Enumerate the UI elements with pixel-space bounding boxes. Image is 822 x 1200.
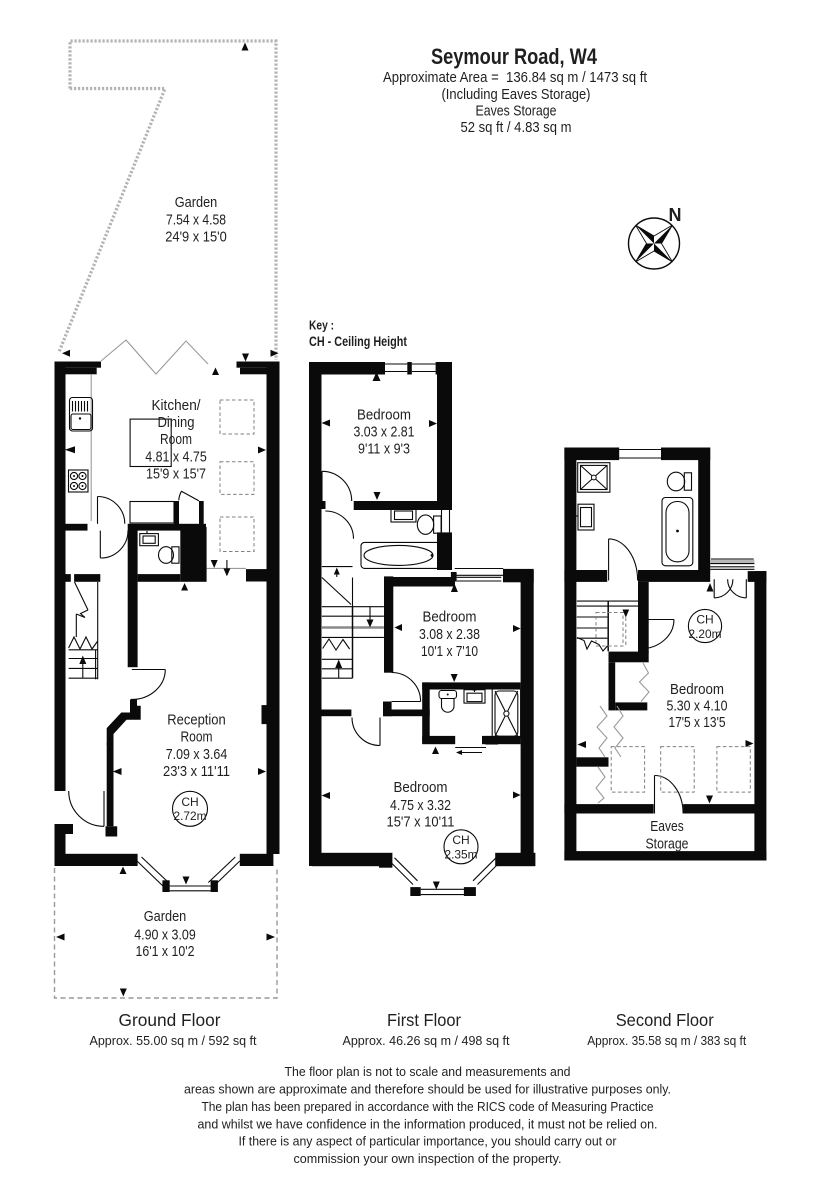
svg-text:16'1 x 10'2: 16'1 x 10'2 — [136, 943, 195, 960]
svg-text:2.35m: 2.35m — [445, 848, 478, 862]
svg-text:The plan has been prepared in: The plan has been prepared in accordance… — [202, 1099, 654, 1114]
svg-text:Garden: Garden — [144, 908, 187, 925]
svg-text:3.03 x 2.81: 3.03 x 2.81 — [354, 424, 415, 441]
svg-text:17'5 x 13'5: 17'5 x 13'5 — [669, 714, 726, 731]
svg-text:Dining: Dining — [158, 414, 195, 431]
svg-text:Bedroom: Bedroom — [670, 681, 724, 698]
svg-text:CH: CH — [452, 833, 469, 847]
svg-text:Eaves: Eaves — [650, 818, 684, 835]
svg-text:Seymour Road, W4: Seymour Road, W4 — [431, 44, 598, 69]
svg-text:Bedroom: Bedroom — [423, 609, 477, 626]
svg-text:23'3 x 11'11: 23'3 x 11'11 — [163, 763, 230, 780]
svg-text:Approx. 46.26 sq m / 498 sq ft: Approx. 46.26 sq m / 498 sq ft — [343, 1033, 510, 1048]
svg-text:15'9 x 15'7: 15'9 x 15'7 — [146, 466, 206, 483]
svg-text:Approx. 35.58 sq m / 383 sq ft: Approx. 35.58 sq m / 383 sq ft — [587, 1033, 746, 1048]
svg-text:(Including Eaves Storage): (Including Eaves Storage) — [442, 87, 591, 103]
svg-text:Approx. 55.00 sq m / 592 sq ft: Approx. 55.00 sq m / 592 sq ft — [90, 1033, 257, 1048]
svg-text:4.81 x 4.75: 4.81 x 4.75 — [145, 449, 207, 466]
svg-text:Room: Room — [181, 729, 213, 746]
svg-text:52 sq ft / 4.83 sq m: 52 sq ft / 4.83 sq m — [461, 120, 572, 136]
svg-text:If there is any aspect of part: If there is any aspect of particular imp… — [239, 1134, 618, 1149]
svg-text:Second Floor: Second Floor — [616, 1010, 714, 1030]
svg-text:5.30 x 4.10: 5.30 x 4.10 — [667, 698, 728, 715]
svg-text:Garden: Garden — [175, 194, 218, 211]
svg-text:4.75 x 3.32: 4.75 x 3.32 — [390, 797, 451, 814]
svg-text:First Floor: First Floor — [387, 1010, 461, 1030]
svg-text:Kitchen/: Kitchen/ — [152, 397, 202, 414]
svg-text:Reception: Reception — [167, 712, 226, 729]
svg-text:10'1 x 7'10: 10'1 x 7'10 — [421, 643, 478, 660]
svg-text:areas shown are approximate an: areas shown are approximate and therefor… — [184, 1082, 671, 1097]
svg-text:Approximate Area = 136.84 sq: Approximate Area = 136.84 sq m / 1473 sq… — [383, 70, 647, 86]
svg-text:Ground Floor: Ground Floor — [119, 1010, 221, 1030]
svg-text:Bedroom: Bedroom — [357, 407, 411, 424]
svg-text:and whilst we have confidence: and whilst we have confidence in the inf… — [198, 1117, 658, 1132]
svg-text:Storage: Storage — [646, 836, 689, 853]
svg-text:commission your own inspection: commission your own inspection of the pr… — [294, 1151, 562, 1166]
svg-text:2.20m: 2.20m — [689, 627, 722, 641]
svg-text:Bedroom: Bedroom — [394, 779, 448, 796]
svg-text:CH - Ceiling Height: CH - Ceiling Height — [309, 334, 407, 349]
svg-text:CH: CH — [696, 613, 713, 627]
svg-text:24'9 x 15'0: 24'9 x 15'0 — [165, 229, 227, 246]
svg-text:4.90 x 3.09: 4.90 x 3.09 — [134, 927, 196, 944]
svg-text:7.09 x 3.64: 7.09 x 3.64 — [166, 746, 228, 763]
svg-text:Room: Room — [160, 431, 192, 448]
svg-text:2.72m: 2.72m — [174, 809, 207, 823]
svg-text:9'11 x 9'3: 9'11 x 9'3 — [358, 441, 410, 458]
svg-text:3.08 x 2.38: 3.08 x 2.38 — [419, 626, 480, 643]
svg-text:Key :: Key : — [309, 318, 334, 333]
svg-text:N: N — [669, 205, 682, 225]
svg-text:CH: CH — [181, 795, 198, 809]
svg-text:15'7 x 10'11: 15'7 x 10'11 — [387, 814, 455, 831]
svg-text:7.54 x 4.58: 7.54 x 4.58 — [166, 212, 226, 229]
svg-text:The floor plan is not to scale: The floor plan is not to scale and measu… — [285, 1064, 571, 1079]
svg-text:Eaves Storage: Eaves Storage — [476, 104, 557, 120]
